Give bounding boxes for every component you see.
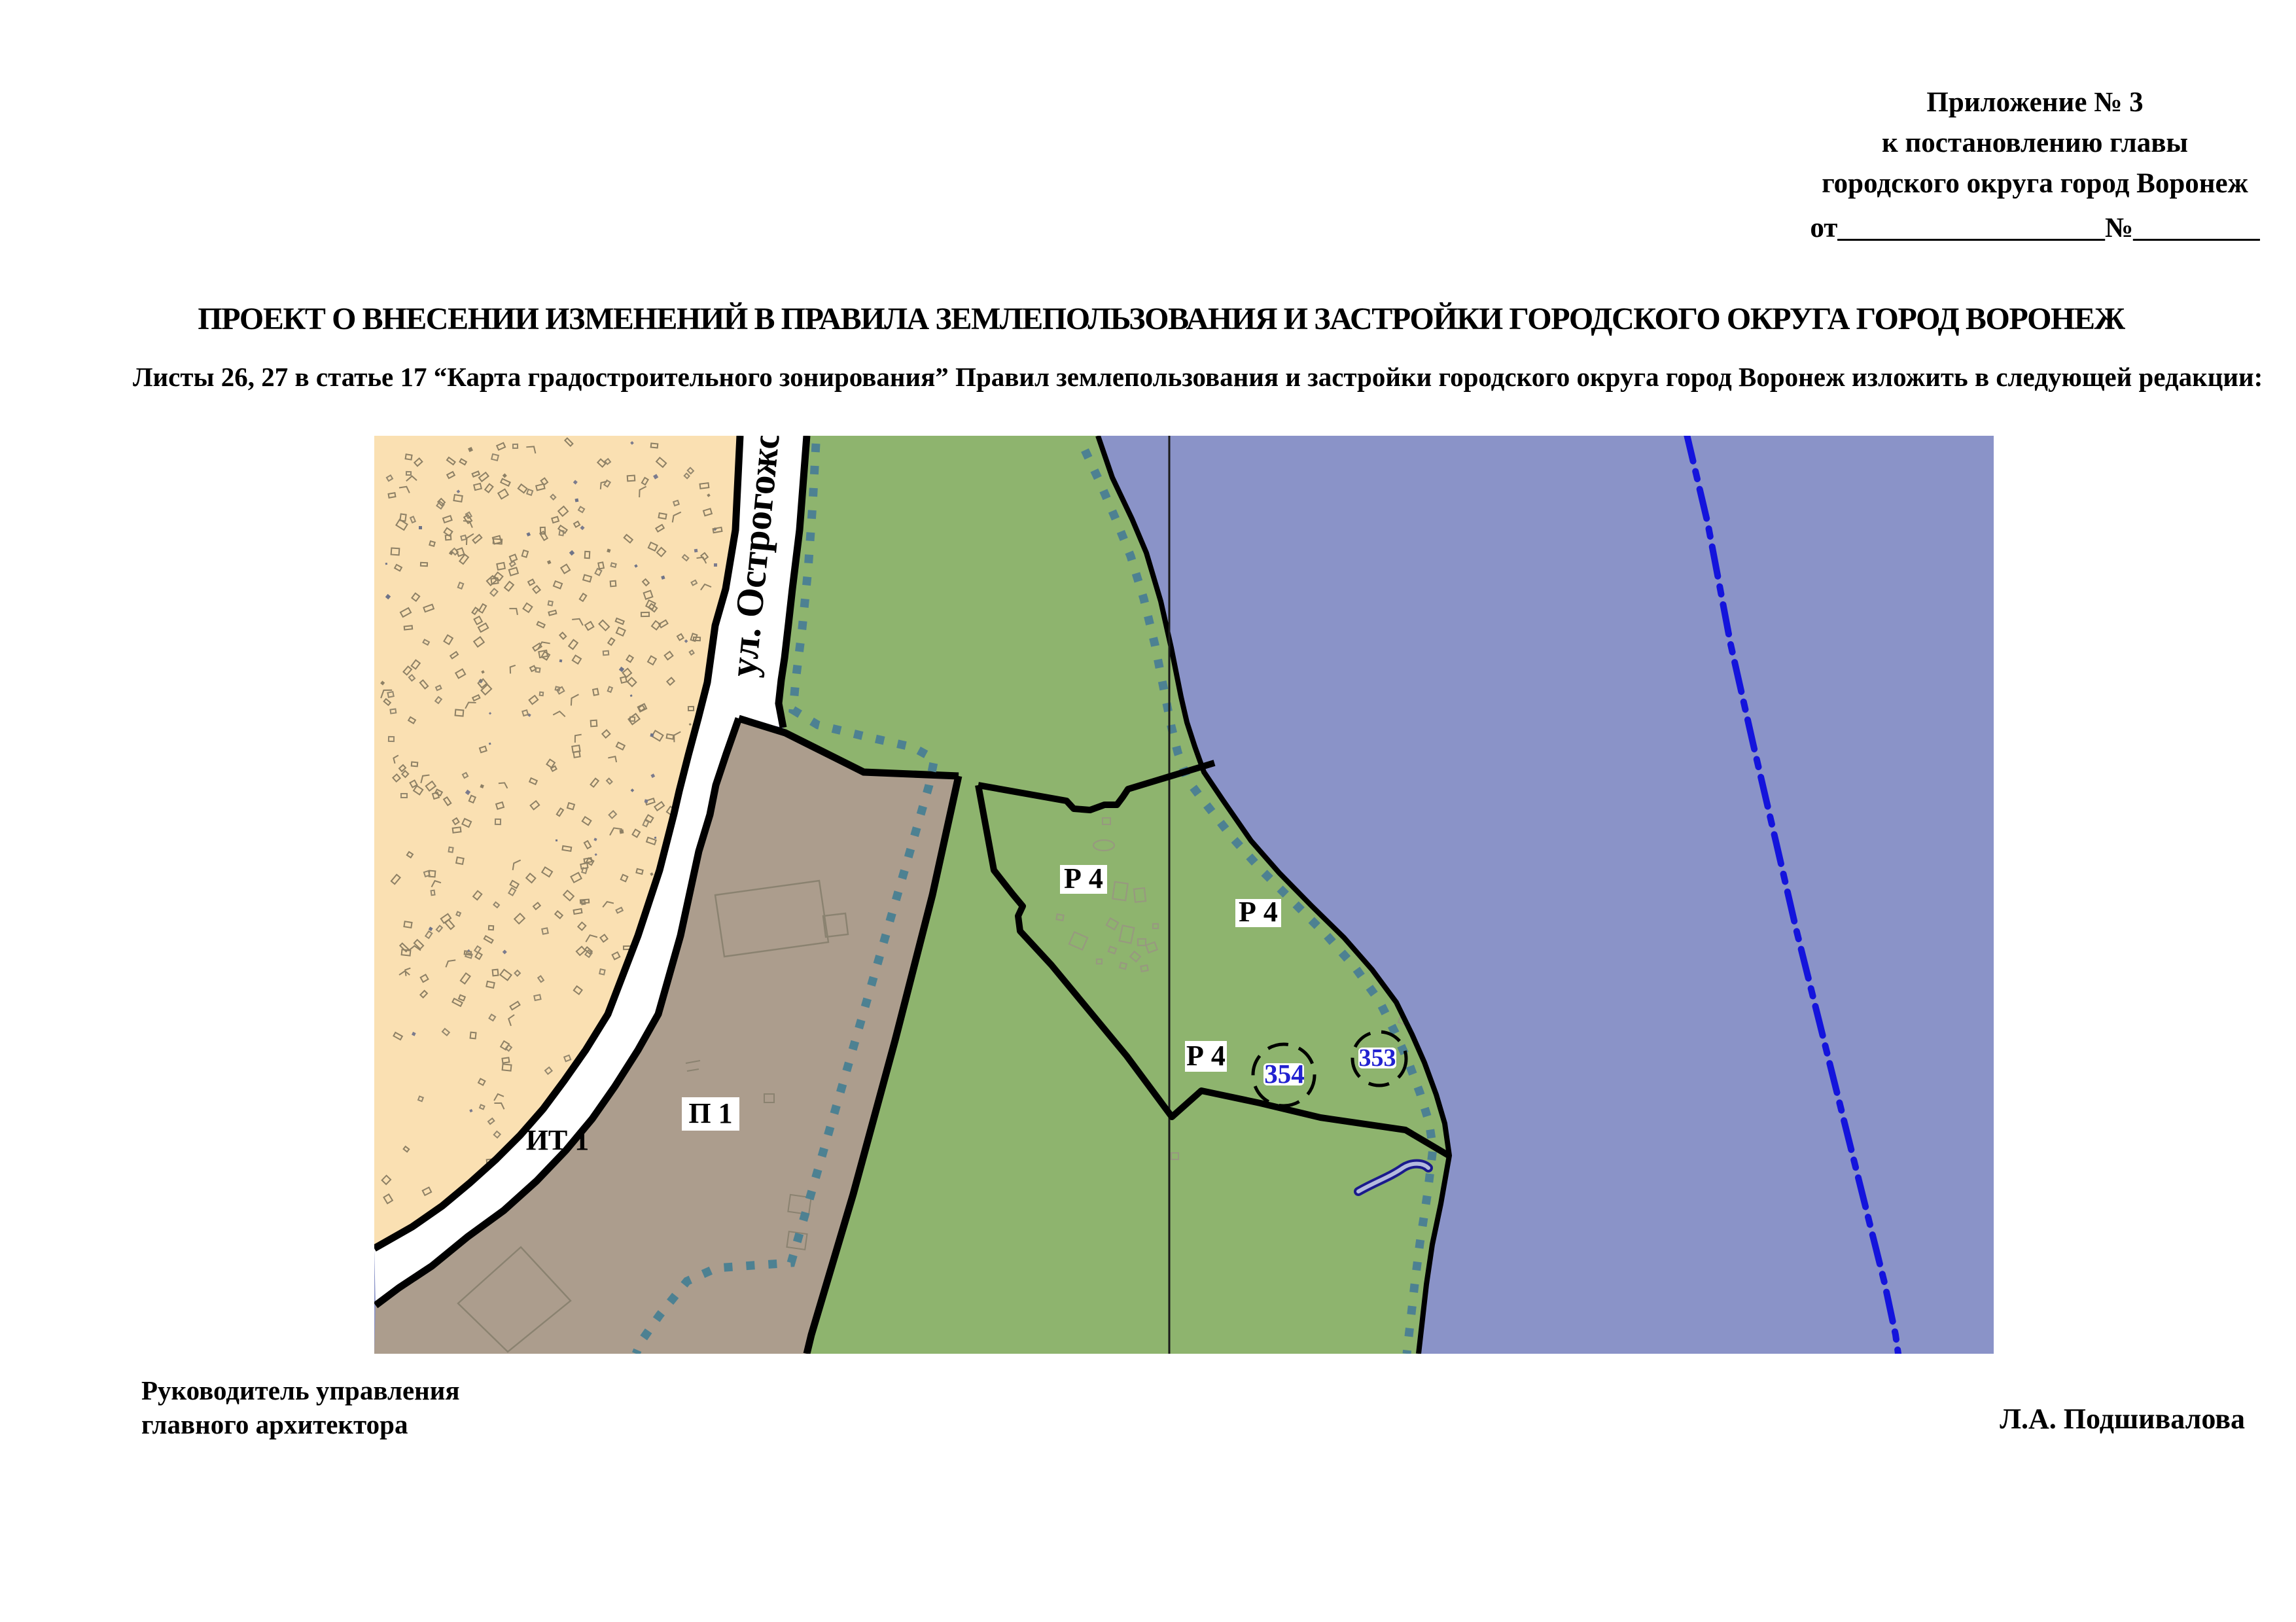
svg-text:Р 4: Р 4 (1064, 862, 1103, 894)
svg-text:354: 354 (1264, 1059, 1305, 1089)
svg-text:Р 4: Р 4 (1186, 1040, 1226, 1072)
svg-text:Р 4: Р 4 (1239, 896, 1278, 928)
svg-text:П 1: П 1 (688, 1097, 732, 1129)
svg-text:353: 353 (1359, 1044, 1396, 1072)
svg-text:ИТ 1: ИТ 1 (526, 1124, 590, 1156)
